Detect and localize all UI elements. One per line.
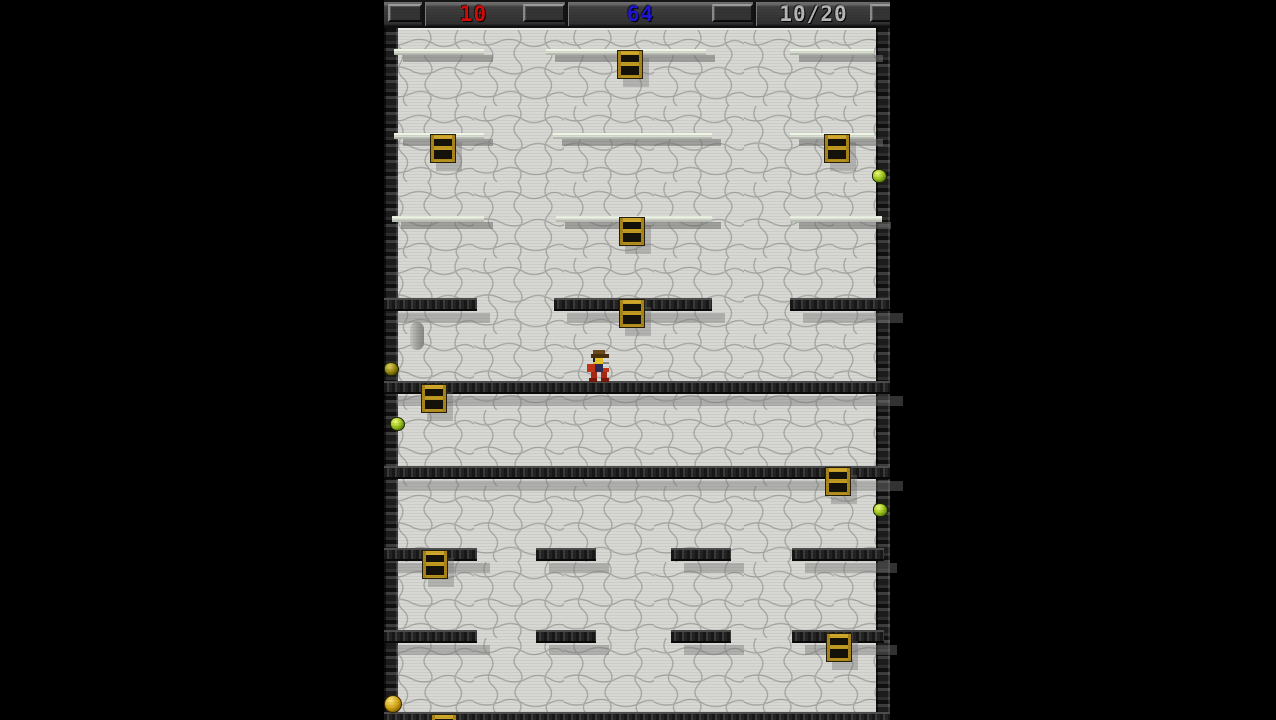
hud-slot-4 [870, 4, 890, 22]
thin-platform [790, 49, 874, 55]
gold-ladder [430, 134, 456, 163]
gold-gem [384, 695, 402, 713]
dark-platform [384, 630, 477, 643]
hud-slot-1 [388, 4, 422, 22]
hud-blue-counter: 64 [627, 4, 654, 25]
dark-platform [671, 548, 731, 561]
dark-platform [790, 298, 890, 311]
dark-platform [384, 712, 890, 720]
gold-ladder [824, 134, 850, 163]
gold-ladder [825, 467, 851, 496]
gold-ladder [826, 633, 852, 662]
dark-platform [384, 466, 890, 479]
hud-progress-panel: 10/20 [757, 3, 870, 25]
hud-level-counter: 10/20 [779, 4, 847, 25]
hud-blue-panel: 64 [569, 3, 712, 25]
gold-ladder [422, 550, 448, 579]
dark-platform [384, 381, 890, 394]
hud-slot-3 [712, 4, 753, 22]
thin-platform [394, 49, 484, 55]
green-gem [872, 169, 887, 183]
olive-gem [384, 362, 399, 376]
gold-ladder [617, 50, 643, 79]
green-gem [390, 417, 405, 431]
hud-bar: 10 64 10/20 [384, 0, 890, 28]
thin-platform [790, 216, 882, 222]
thin-platform [553, 133, 712, 139]
stone-background [384, 28, 890, 720]
green-gem [873, 503, 888, 517]
hud-slot-2 [523, 4, 565, 22]
game-screen: 10 64 10/20 [0, 0, 1276, 720]
brick-wall-right [876, 28, 890, 720]
capsule-object [410, 322, 424, 350]
gold-ladder [421, 384, 447, 413]
gold-ladder [431, 714, 457, 720]
dark-platform [536, 630, 596, 643]
game-stage[interactable]: 10 64 10/20 [384, 0, 890, 720]
hud-red-counter: 10 [460, 4, 487, 25]
gold-ladder [619, 217, 645, 246]
hud-red-panel: 10 [426, 3, 521, 25]
gold-ladder [619, 299, 645, 328]
player-character[interactable] [582, 350, 616, 382]
thin-platform [392, 216, 484, 222]
dark-platform [536, 548, 596, 561]
player-sprite [582, 350, 616, 382]
dark-platform [671, 630, 731, 643]
dark-platform [384, 298, 477, 311]
dark-platform [792, 548, 884, 561]
